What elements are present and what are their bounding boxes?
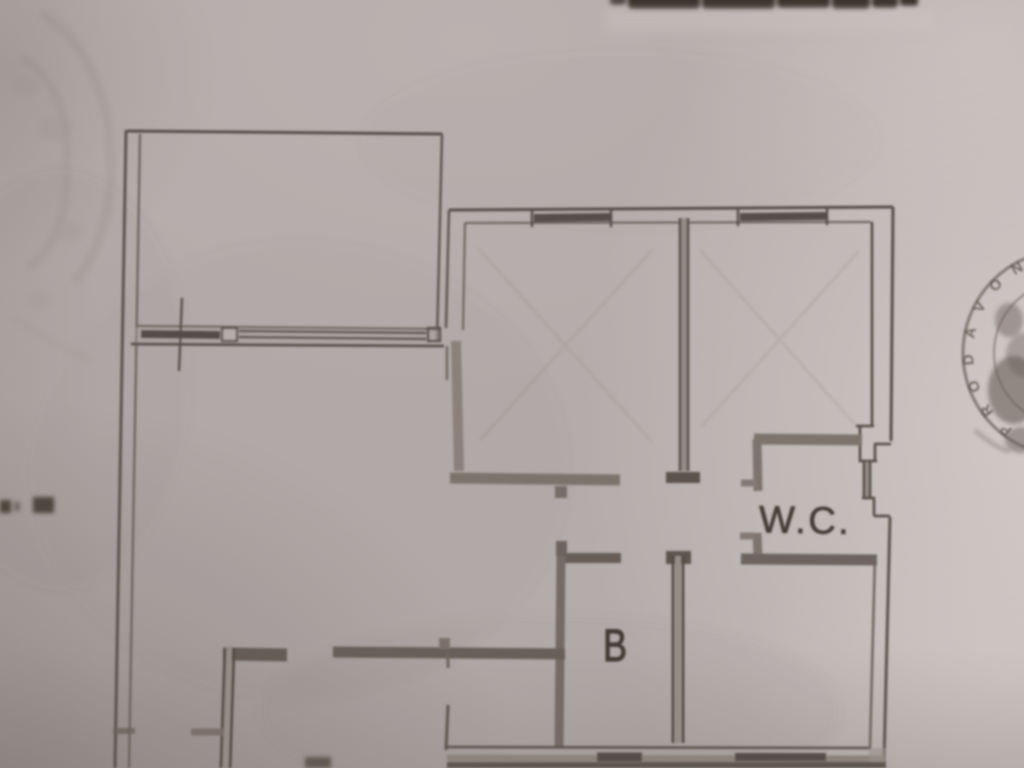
svg-text:B: B <box>603 620 627 671</box>
svg-text:W.C.: W.C. <box>759 499 852 543</box>
svg-text:D: D <box>960 354 978 366</box>
